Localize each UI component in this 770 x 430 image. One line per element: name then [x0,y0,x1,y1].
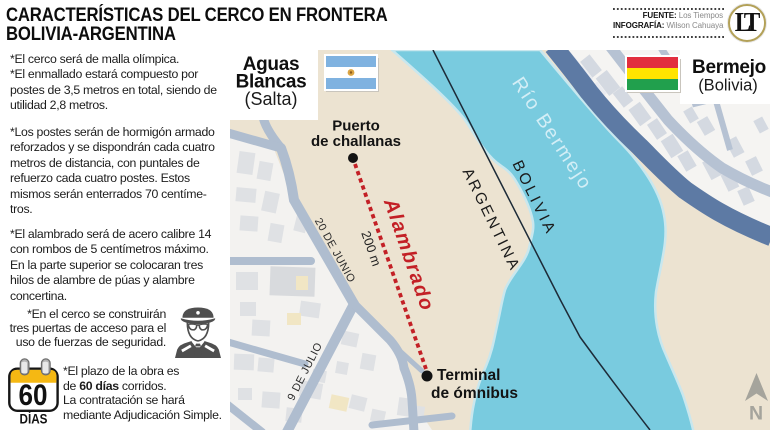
svg-text:DÍAS: DÍAS [20,412,48,427]
svg-text:(Bolivia): (Bolivia) [698,77,758,95]
svg-text:de challanas: de challanas [311,133,401,150]
svg-text:60: 60 [19,379,48,412]
svg-text:Bermejo: Bermejo [692,57,766,78]
svg-text:Puerto: Puerto [332,118,380,135]
svg-text:(Salta): (Salta) [244,89,297,109]
svg-text:N: N [749,403,763,425]
svg-text:Terminal: Terminal [437,367,500,384]
svg-text:de ómnibus: de ómnibus [431,385,518,402]
